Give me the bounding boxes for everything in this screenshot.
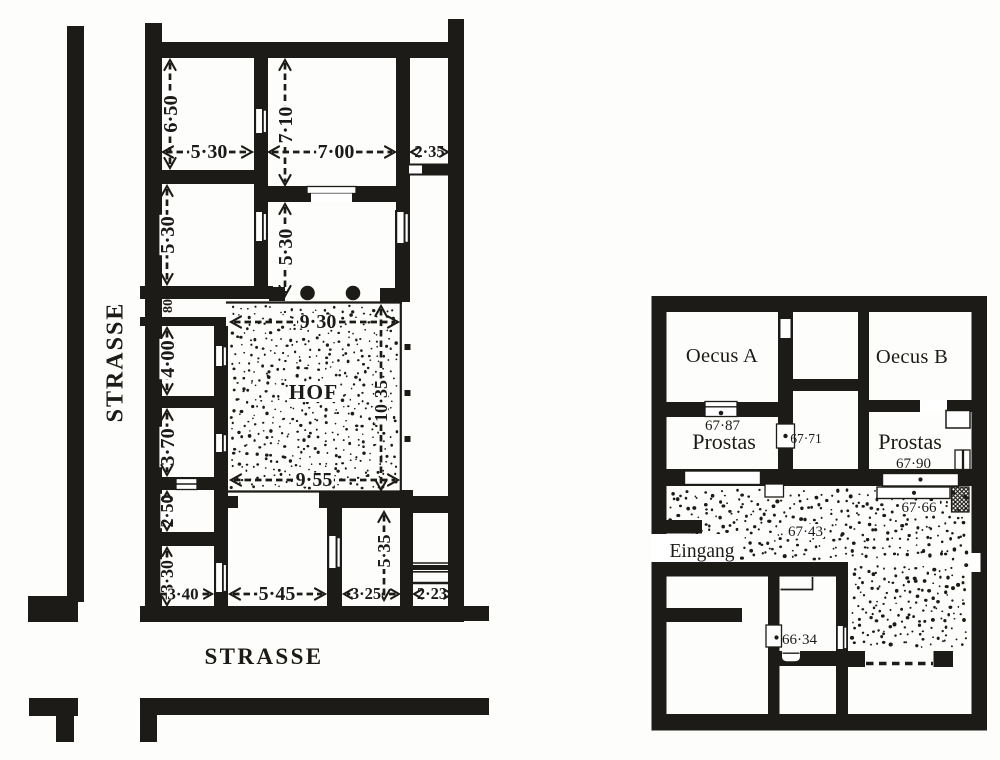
svg-text:Oecus A: Oecus A (686, 345, 758, 367)
svg-text:3·70: 3·70 (157, 428, 179, 466)
svg-text:67·90: 67·90 (896, 456, 931, 472)
svg-text:Eingang: Eingang (670, 541, 735, 562)
svg-text:Oecus B: Oecus B (876, 346, 948, 368)
svg-text:STRASSE: STRASSE (204, 644, 323, 669)
svg-text:10·35: 10·35 (371, 380, 391, 422)
svg-text:67·43: 67·43 (788, 524, 823, 540)
svg-text:5·30: 5·30 (157, 216, 179, 254)
svg-text:5·45: 5·45 (259, 583, 296, 605)
svg-text:5·35: 5·35 (374, 534, 394, 567)
svg-text:66·34: 66·34 (782, 632, 817, 648)
svg-text:7·00: 7·00 (318, 141, 355, 163)
svg-text:3·25: 3·25 (351, 584, 381, 603)
svg-text:Prostas: Prostas (692, 429, 756, 454)
svg-text:4·00: 4·00 (157, 340, 179, 378)
svg-text:5·30: 5·30 (191, 141, 228, 163)
svg-text:67·71: 67·71 (790, 431, 822, 446)
svg-text:2·35: 2·35 (414, 142, 444, 161)
svg-text:9·30: 9·30 (300, 311, 337, 333)
svg-text:2·50: 2·50 (157, 494, 177, 527)
svg-text:80: 80 (161, 299, 176, 313)
svg-text:7·10: 7·10 (275, 107, 297, 144)
svg-text:2·23: 2·23 (417, 584, 447, 603)
svg-text:3·40: 3·40 (167, 584, 198, 603)
svg-text:5·30: 5·30 (275, 229, 297, 266)
svg-text:Prostas: Prostas (878, 429, 942, 454)
svg-text:9·55: 9·55 (296, 469, 333, 491)
svg-text:67·66: 67·66 (902, 500, 937, 516)
svg-text:HOF: HOF (289, 380, 339, 404)
svg-text:6·50: 6·50 (160, 95, 182, 133)
svg-text:STRASSE: STRASSE (103, 302, 129, 423)
